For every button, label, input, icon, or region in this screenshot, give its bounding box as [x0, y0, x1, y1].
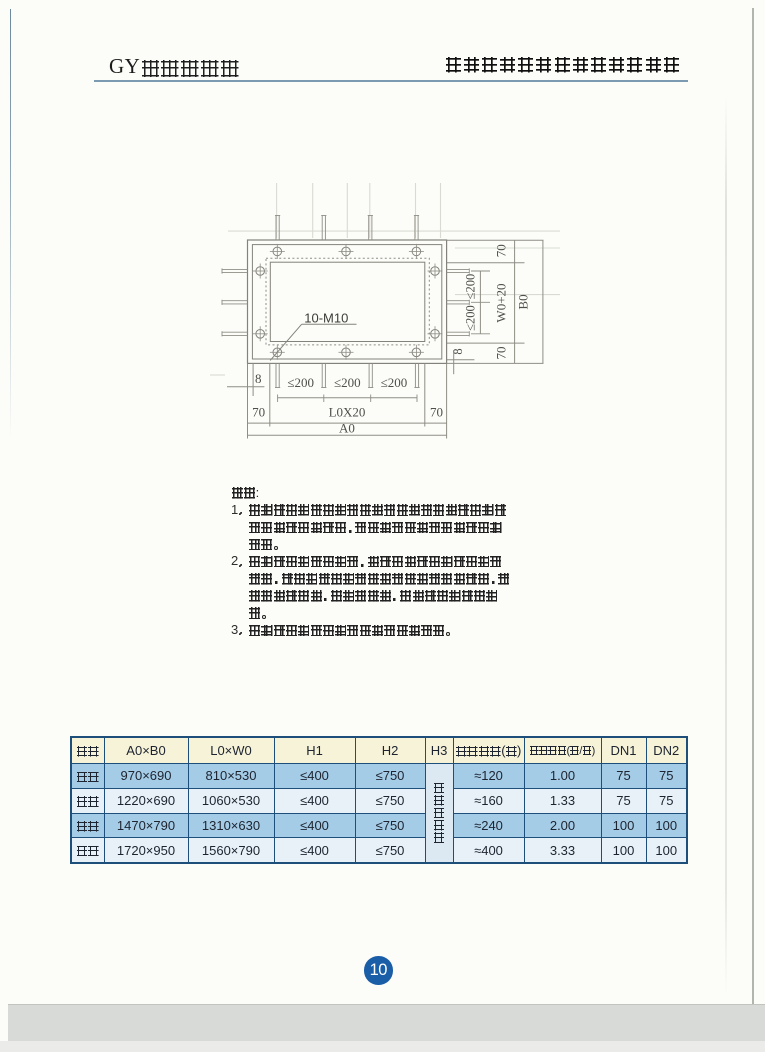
svg-text:70: 70: [252, 405, 265, 420]
svg-text:≤200: ≤200: [287, 375, 314, 390]
svg-text:8: 8: [255, 371, 262, 386]
svg-text:8: 8: [451, 348, 465, 354]
svg-text:≤200: ≤200: [334, 375, 361, 390]
svg-text:L0X20: L0X20: [329, 405, 366, 420]
svg-text:70: 70: [494, 347, 509, 360]
svg-text:≤200: ≤200: [464, 305, 478, 331]
svg-text:A0: A0: [339, 421, 355, 436]
svg-text:≤200: ≤200: [381, 375, 408, 390]
svg-text:10-M10: 10-M10: [304, 311, 348, 326]
svg-text:B0: B0: [516, 294, 531, 309]
svg-text:≤200: ≤200: [464, 274, 478, 300]
svg-text:70: 70: [494, 244, 509, 257]
svg-text:W0+20: W0+20: [494, 283, 509, 322]
svg-text:70: 70: [430, 405, 443, 420]
